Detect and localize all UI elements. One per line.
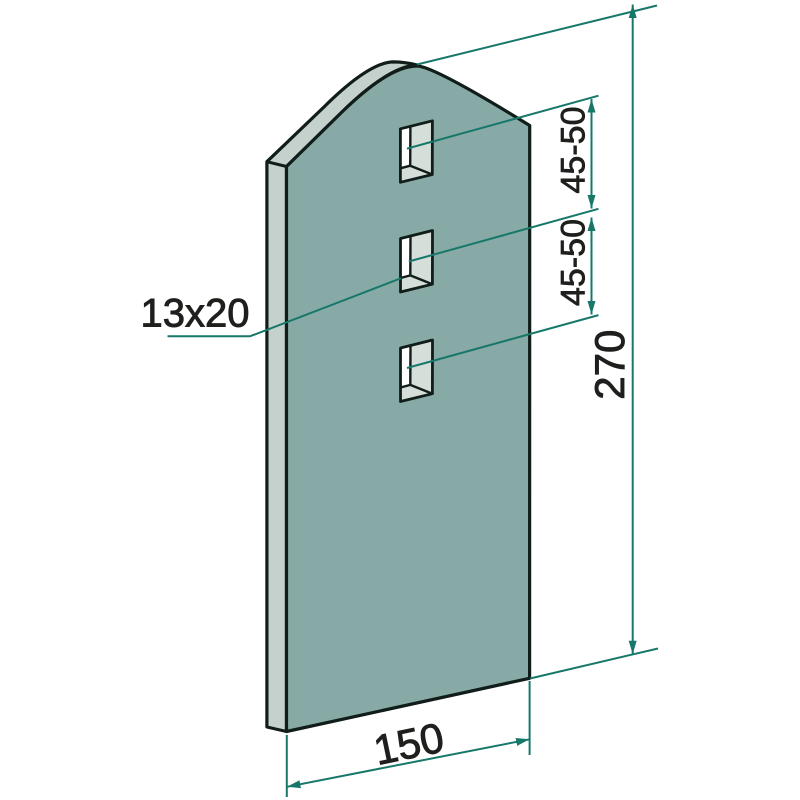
svg-text:13x20: 13x20	[141, 291, 250, 335]
svg-text:150: 150	[370, 714, 448, 774]
svg-text:270: 270	[586, 330, 633, 400]
svg-text:45-50: 45-50	[554, 219, 592, 306]
svg-text:45-50: 45-50	[554, 107, 592, 194]
